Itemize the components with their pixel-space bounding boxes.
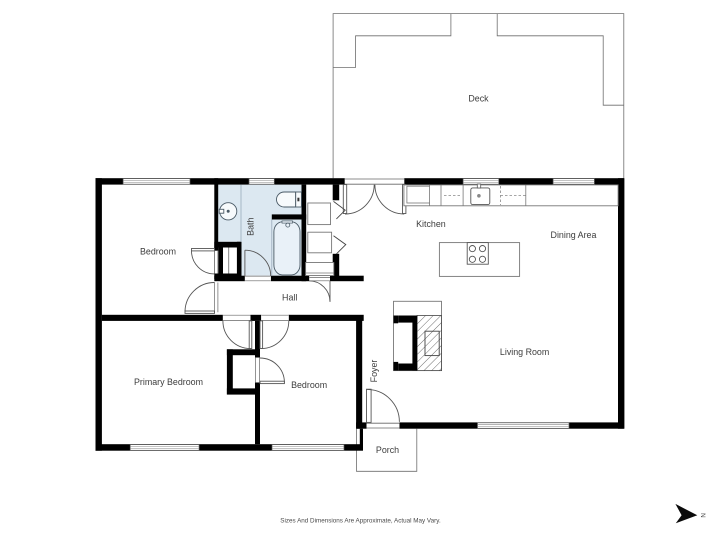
svg-text:Bedroom: Bedroom [291,380,327,390]
svg-text:Living Room: Living Room [500,347,549,357]
svg-text:Sizes And Dimensions Are Appro: Sizes And Dimensions Are Approximate, Ac… [280,518,441,525]
svg-text:Hall: Hall [282,292,297,302]
svg-text:N: N [699,513,706,517]
svg-text:Porch: Porch [376,445,399,455]
svg-text:Deck: Deck [468,94,489,104]
svg-text:Kitchen: Kitchen [416,219,446,229]
svg-text:Bath: Bath [246,218,256,236]
svg-text:Foyer: Foyer [369,360,379,383]
svg-text:Dining Area: Dining Area [551,230,597,240]
svg-text:Bedroom: Bedroom [140,247,176,257]
svg-text:Primary Bedroom: Primary Bedroom [134,377,203,387]
